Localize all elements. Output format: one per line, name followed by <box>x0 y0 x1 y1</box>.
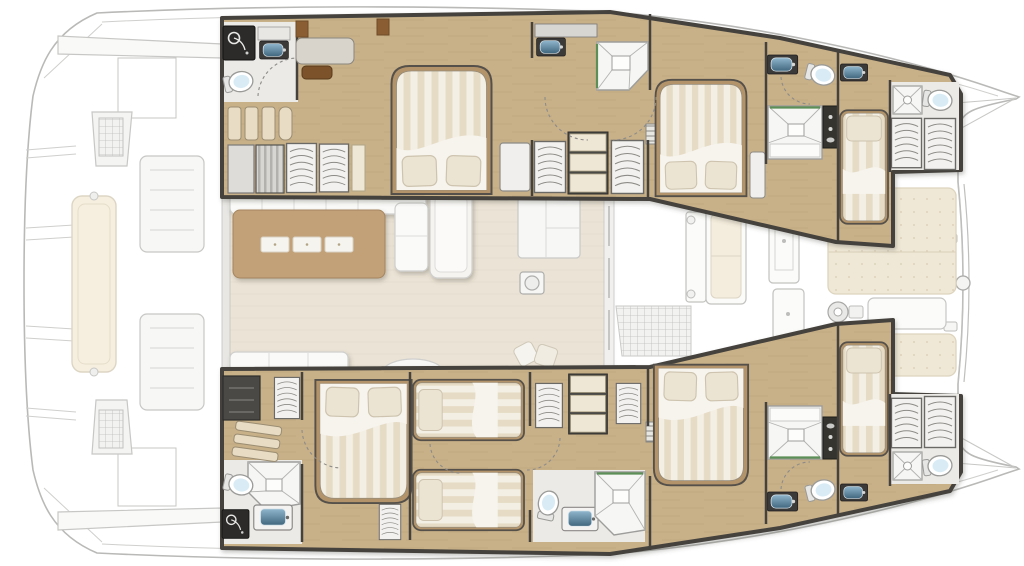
sink-icon <box>767 492 797 511</box>
wardrobe <box>891 118 921 167</box>
wardrobe <box>925 119 956 170</box>
dark-cabinet <box>823 417 838 459</box>
wardrobe <box>891 398 921 447</box>
nightstand <box>750 152 765 198</box>
slat-bench <box>232 421 282 462</box>
wardrobe <box>536 383 563 427</box>
wardrobe <box>611 141 643 194</box>
sink-icon <box>767 55 797 74</box>
door-hinge <box>687 290 695 298</box>
wardrobe <box>616 383 640 423</box>
double-bed <box>392 66 492 194</box>
shelf-unit <box>568 132 608 194</box>
dining-table <box>233 210 385 278</box>
placemats <box>261 237 353 252</box>
locker-flat <box>228 145 254 193</box>
dark-cabinet <box>223 376 260 420</box>
helm-console <box>92 400 132 454</box>
wardrobe <box>319 144 348 192</box>
wardrobe <box>287 143 317 192</box>
deck-hatch <box>520 272 544 294</box>
shower-stall <box>768 406 822 459</box>
fwd-bench <box>706 208 746 304</box>
floorplan-canvas <box>0 0 1024 566</box>
cockpit-lounger <box>140 314 204 410</box>
headboard-trim <box>296 21 308 37</box>
twin-bed <box>413 380 524 440</box>
aft-bench <box>72 192 116 376</box>
catamaran-floorplan <box>0 0 1024 566</box>
chaise-longue <box>430 190 472 278</box>
wardrobe <box>535 142 566 193</box>
cockpit-lounger <box>140 156 204 252</box>
starboard-aft-bathroom <box>222 460 302 544</box>
headboard-trim <box>377 19 389 35</box>
shower-cabin-icon <box>223 26 255 60</box>
locker-top <box>535 24 597 37</box>
vanity-desk <box>296 38 354 64</box>
double-bed <box>315 380 411 503</box>
salon <box>222 190 614 374</box>
twin-bed <box>413 470 524 530</box>
shower-stall <box>893 452 922 480</box>
nightstand <box>500 143 530 191</box>
sink-icon <box>840 64 867 81</box>
wardrobe <box>274 377 299 418</box>
cabinet <box>258 27 290 40</box>
dark-cabinet <box>823 106 838 148</box>
vanity-sink <box>562 507 598 530</box>
galley-counter <box>518 197 580 258</box>
sink-icon <box>840 484 867 501</box>
shelf-unit <box>569 374 608 434</box>
fwd-door-post <box>686 212 706 302</box>
shelf-thin <box>352 145 365 191</box>
helm-console <box>92 112 132 166</box>
shower-stall <box>893 86 922 114</box>
starboard-bow-bathroom <box>891 394 959 484</box>
vanity-sink <box>254 505 292 530</box>
sink-icon <box>537 38 566 56</box>
port-bow-bathroom <box>891 82 959 170</box>
wardrobe <box>379 504 400 539</box>
single-bed <box>840 342 888 455</box>
grid-mat <box>616 306 691 356</box>
shower-stall <box>768 106 822 159</box>
sink-icon <box>260 41 289 59</box>
double-bed <box>656 80 747 196</box>
salon-aft-wall <box>222 192 230 374</box>
double-bed <box>654 365 748 486</box>
starboard-fwd-double-cabin <box>654 365 748 486</box>
door-hinge <box>687 216 695 224</box>
single-bed <box>840 110 888 223</box>
forestay-fitting <box>956 276 970 290</box>
port-aft-bathroom <box>222 22 298 102</box>
wardrobe <box>925 397 956 448</box>
locker-louver <box>256 145 284 193</box>
stool <box>302 66 332 79</box>
shower-cabin-icon <box>222 510 249 539</box>
